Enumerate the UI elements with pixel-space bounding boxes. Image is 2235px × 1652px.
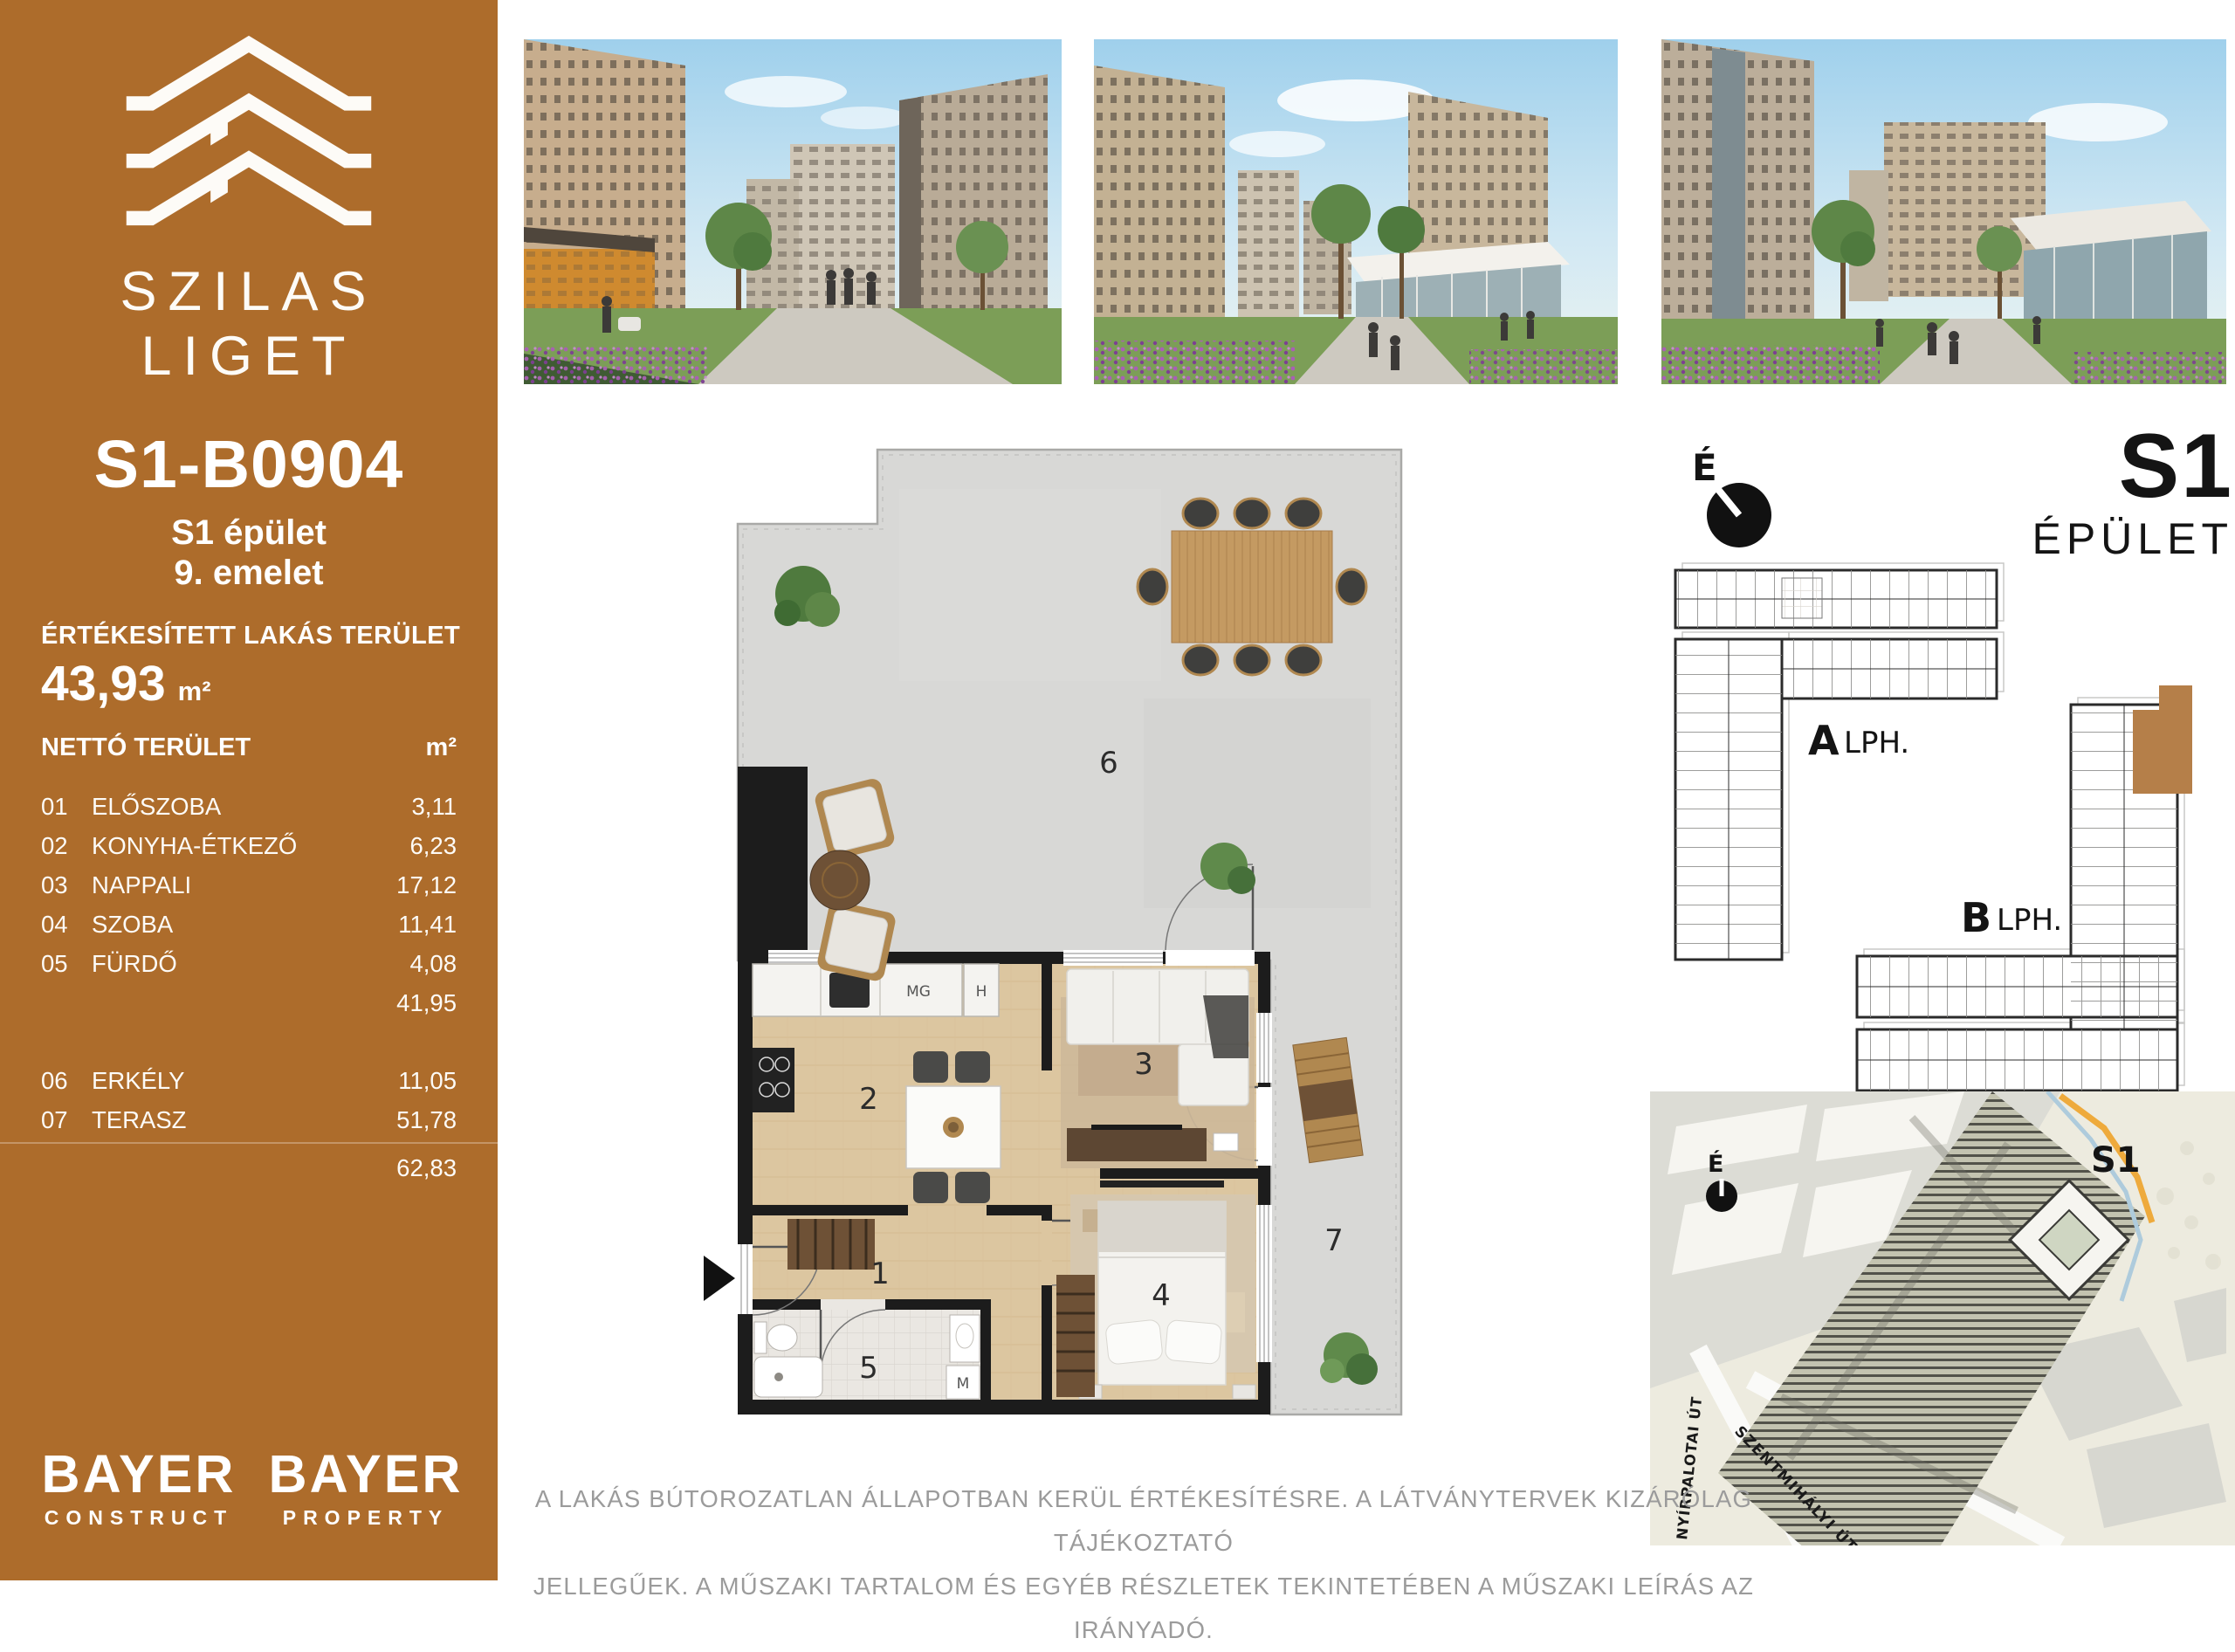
room-area: 3,11 (412, 793, 457, 821)
highlighted-unit (2133, 685, 2192, 794)
net-area-header: NETTÓ TERÜLET m² (41, 733, 457, 762)
render-photo-promenade (1661, 39, 2226, 384)
disclaimer-text: A LAKÁS BÚTOROZATLAN ÁLLAPOTBAN KERÜL ÉR… (506, 1477, 1781, 1652)
szilasliget-logo-icon (0, 19, 498, 244)
room-num: 03 (41, 871, 92, 899)
apartment-building: S1 épület (0, 513, 498, 553)
floor-key-plan: A LPH. B LPH. (1659, 559, 2235, 1091)
wing-b-letter: B (1961, 894, 1991, 941)
apartment-floor-plan: 6 2 3 1 5 4 7 MG H M (690, 437, 1449, 1428)
outdoor-total-row: 62,83 (41, 1154, 457, 1182)
render-photo-plaza (1094, 39, 1618, 384)
room-row: 02 KONYHA-ÉTKEZŐ 6,23 (41, 832, 457, 860)
bayer-construct-word: BAYER (35, 1448, 243, 1501)
sold-area-label: ÉRTÉKESÍTETT LAKÁS TERÜLET (41, 622, 460, 650)
room-area: 11,05 (398, 1067, 457, 1095)
label-hall-1: 1 (870, 1256, 890, 1291)
label-washer: M (957, 1375, 970, 1393)
label-balcony-7: 7 (1324, 1223, 1344, 1258)
sidebar-divider (0, 1142, 498, 1144)
building-overview: É S1 ÉPÜLET (1659, 419, 2235, 1091)
room-name: ELŐSZOBA (92, 793, 412, 821)
sidebar: SZILAS LIGET S1-B0904 S1 épület 9. emele… (0, 0, 498, 1580)
room-name: TERASZ (92, 1106, 396, 1134)
outdoor-row: 06 ERKÉLY 11,05 (41, 1067, 457, 1095)
left-building (1094, 65, 1225, 349)
outdoor-total: 62,83 (396, 1154, 457, 1182)
sold-area-value: 43,93m² (41, 655, 211, 712)
bayer-property-sub: PROPERTY (262, 1506, 470, 1530)
label-bedroom-4: 4 (1152, 1278, 1171, 1313)
overview-s1: S1 (2032, 426, 2233, 508)
room-name: ERKÉLY (92, 1067, 398, 1095)
north-letter: É (1692, 445, 1717, 489)
wing-a-letter: A (1808, 717, 1840, 764)
room-area: 11,41 (398, 911, 457, 939)
left-tower (1661, 39, 1814, 354)
room-num: 01 (41, 793, 92, 821)
label-terrace-6: 6 (1099, 746, 1118, 781)
wing-b-label: LPH. (1997, 903, 2062, 938)
disclaimer-line2: JELLEGŰEK. A MŰSZAKI TARTALOM ÉS EGYÉB R… (506, 1565, 1781, 1652)
living-furniture (1061, 969, 1255, 1168)
room-area: 6,23 (409, 832, 457, 860)
north-compass-icon: É (1668, 435, 1798, 557)
apartment-floor: 9. emelet (0, 554, 498, 593)
bayer-construct-logo: BAYER CONSTRUCT (35, 1448, 243, 1530)
bayer-property-logo: BAYER PROPERTY (262, 1448, 470, 1530)
overview-title: S1 ÉPÜLET (2032, 426, 2233, 564)
right-building (899, 74, 1048, 327)
room-name: NAPPALI (92, 871, 396, 899)
label-living-3: 3 (1134, 1047, 1153, 1082)
room-name: SZOBA (92, 911, 398, 939)
bayer-property-word: BAYER (262, 1448, 470, 1501)
brand-name-line2: LIGET (0, 325, 498, 388)
room-num: 07 (41, 1106, 92, 1134)
s1-map-label: S1 (2091, 1140, 2141, 1180)
room-num: 05 (41, 950, 92, 978)
room-num: 06 (41, 1067, 92, 1095)
room-area: 17,12 (396, 871, 457, 899)
entry-arrow-icon (704, 1256, 735, 1301)
overview-epulet: ÉPÜLET (2032, 513, 2233, 564)
room-row: 03 NAPPALI 17,12 (41, 871, 457, 899)
sold-area-unit: m² (178, 676, 211, 706)
room-num: 04 (41, 911, 92, 939)
room-num: 02 (41, 832, 92, 860)
apartment-id: S1-B0904 (0, 426, 498, 504)
wing-a-label: LPH. (1844, 726, 1909, 761)
brand-name-line1: SZILAS (0, 260, 498, 323)
outdoor-row: 07 TERASZ 51,78 (41, 1106, 457, 1134)
render-photo-courtyard (524, 39, 1062, 384)
label-fridge: H (976, 983, 987, 1001)
rooms-subtotal: 41,95 (396, 989, 457, 1017)
room-area: 51,78 (396, 1106, 457, 1134)
coat-rack (787, 1219, 875, 1270)
room-row: 04 SZOBA 11,41 (41, 911, 457, 939)
sold-area-number: 43,93 (41, 656, 166, 712)
room-area: 4,08 (409, 950, 457, 978)
label-kitchen-2: 2 (859, 1082, 878, 1117)
neighbour-wall-mass (738, 767, 808, 960)
label-bath-5: 5 (859, 1351, 878, 1386)
room-name: FÜRDŐ (92, 950, 409, 978)
room-row: 01 ELŐSZOBA 3,11 (41, 793, 457, 821)
room-row: 05 FÜRDŐ 4,08 (41, 950, 457, 978)
glass-pavilion (2011, 201, 2211, 336)
room-name: KONYHA-ÉTKEZŐ (92, 832, 409, 860)
bayer-construct-sub: CONSTRUCT (35, 1506, 243, 1530)
map-north-letter: É (1708, 1150, 1723, 1178)
net-area-unit: m² (426, 733, 457, 762)
disclaimer-line1: A LAKÁS BÚTOROZATLAN ÁLLAPOTBAN KERÜL ÉR… (506, 1477, 1781, 1565)
net-area-label: NETTÓ TERÜLET (41, 733, 251, 762)
rooms-subtotal-row: 41,95 (41, 989, 457, 1017)
label-dishwasher: MG (906, 983, 931, 1001)
